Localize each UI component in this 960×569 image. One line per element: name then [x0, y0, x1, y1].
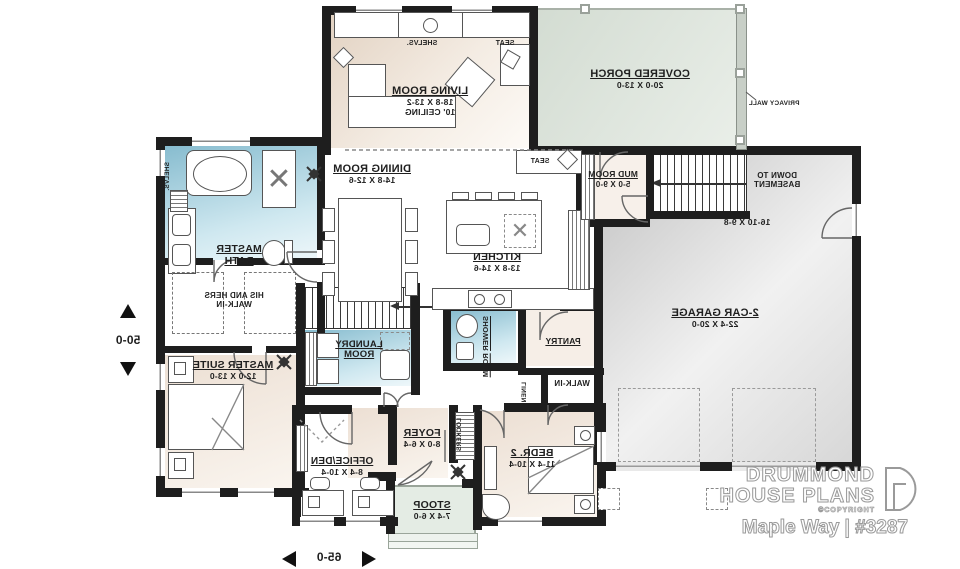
his-hers-walkin-label: HIS AND HERS WALK-IN [186, 292, 282, 310]
shower-room-label: SHOWER ROOM [482, 316, 510, 362]
master-suite-dims: 12-0 X 13-0 [180, 372, 286, 381]
kitchen-label: KITCHEN [452, 252, 542, 264]
brand-copyright: ©COPYRIGHT [745, 507, 875, 514]
depth-dimension: 50-0 [104, 334, 152, 347]
brand-logo-icon [880, 464, 926, 514]
living-room-note: 10' CEILING [350, 108, 510, 117]
porch-label: COVERED PORCH [570, 68, 710, 80]
seat-label: SEAT [486, 40, 524, 48]
mud-room-dims: 5-0 X 9-0 [582, 181, 644, 190]
down-to-basement-label: DOWN TO BASEMENT [748, 172, 806, 190]
stoop-dims: 7-4 X 6-0 [396, 512, 468, 521]
laundry-label: LAUNDRY ROOM [320, 340, 398, 361]
kitchen-dims: 13-8 X 14-6 [452, 264, 542, 273]
garage-alcove-dims: 16-10 X 9-8 [712, 218, 782, 227]
master-bath-line1: MASTER [206, 244, 272, 256]
garage-label: 2-CAR GARAGE [650, 307, 780, 319]
ceiling-fan-icon [448, 462, 468, 482]
foyer-dims: 8-0 X 6-4 [390, 440, 454, 449]
foyer-label: FOYER [390, 428, 454, 440]
master-bath-label: MASTER BATH [206, 244, 272, 267]
pantry-label: PANTRY [534, 337, 592, 346]
seat-label: SEAT [520, 158, 560, 166]
down-to-line2: BASEMENT [748, 181, 806, 190]
office-den-label: OFFICE/DEN [300, 456, 384, 467]
master-bath-line2: BATH [206, 256, 272, 268]
dining-room-label: DINING ROOM [312, 163, 432, 175]
width-arrow-left [282, 551, 296, 567]
brand-company-line2: HOUSE PLANS [660, 485, 875, 508]
depth-arrow-up [120, 304, 136, 318]
linen-label: LINEN [521, 378, 537, 406]
mud-room-label: MUD ROOM [582, 170, 644, 179]
shower-line1: SHOWER [481, 316, 490, 351]
laundry-line2: ROOM [320, 350, 398, 360]
walkin-bed2-label: WALK-IN [544, 380, 600, 389]
privacy-wall-label: PRIVACY WALL [736, 100, 812, 107]
his-hers-line2: WALK-IN [186, 301, 282, 310]
master-suite-label: MASTER SUITE [180, 360, 286, 372]
brand-plan-title: Maple Way | #3287 [640, 517, 908, 539]
dining-room-dims: 14-8 X 12-6 [312, 176, 432, 185]
depth-arrow-down [120, 362, 136, 376]
porch-dims: 20-0 X 13-0 [570, 81, 710, 90]
lockers-label: LOCKERS [456, 409, 472, 461]
brand-company-line1: DRUMMOND [660, 464, 875, 487]
garage-dims: 22-4 X 20-0 [650, 320, 780, 329]
shower-line2: ROOM [481, 353, 490, 377]
bedroom2-label: BEDR. 2 [496, 448, 568, 460]
living-room-label: LIVING ROOM [350, 85, 510, 97]
living-room-dims: 18-8 X 13-2 [350, 98, 510, 107]
stoop-label: STOOP [396, 500, 468, 512]
width-arrow-right [362, 551, 376, 567]
width-dimension: 65-0 [300, 551, 358, 564]
shelves-label: SHELVS. [400, 40, 444, 48]
shelves-label: SHELVS. [164, 156, 178, 196]
bedroom2-dims: 11-4 X 10-4 [496, 460, 568, 469]
office-den-dims: 8-4 X 10-4 [300, 468, 384, 477]
floor-plan: ✕ ✕ [0, 0, 960, 569]
